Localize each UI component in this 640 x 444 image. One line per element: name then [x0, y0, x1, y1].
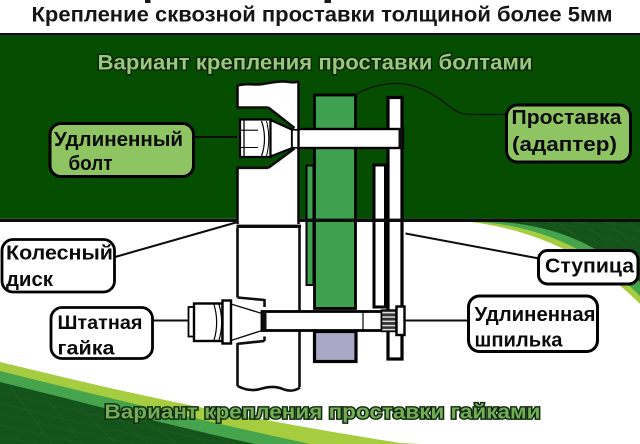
- svg-text:Вариант крепления проставки бо: Вариант крепления проставки болтами: [98, 52, 533, 75]
- svg-text:Крепление сквозной проставки т: Крепление сквозной проставки толщиной бо…: [32, 3, 613, 27]
- svg-text:Штатная: Штатная: [58, 313, 143, 334]
- svg-text:Проставка: Проставка: [512, 107, 623, 129]
- svg-text:Ступица: Ступица: [545, 256, 635, 278]
- svg-text:гайка: гайка: [58, 339, 115, 360]
- svg-text:Удлиненная: Удлиненная: [475, 304, 596, 326]
- svg-text:болт: болт: [69, 153, 113, 175]
- svg-text:Удлиненный: Удлиненный: [54, 129, 183, 151]
- svg-text:Вариант крепления проставки га: Вариант крепления проставки гайками: [105, 400, 541, 423]
- svg-text:шпилька: шпилька: [475, 330, 564, 352]
- svg-text:(адаптер): (адаптер): [512, 134, 617, 156]
- svg-text:диск: диск: [6, 269, 54, 291]
- svg-text:Колесный: Колесный: [6, 243, 113, 265]
